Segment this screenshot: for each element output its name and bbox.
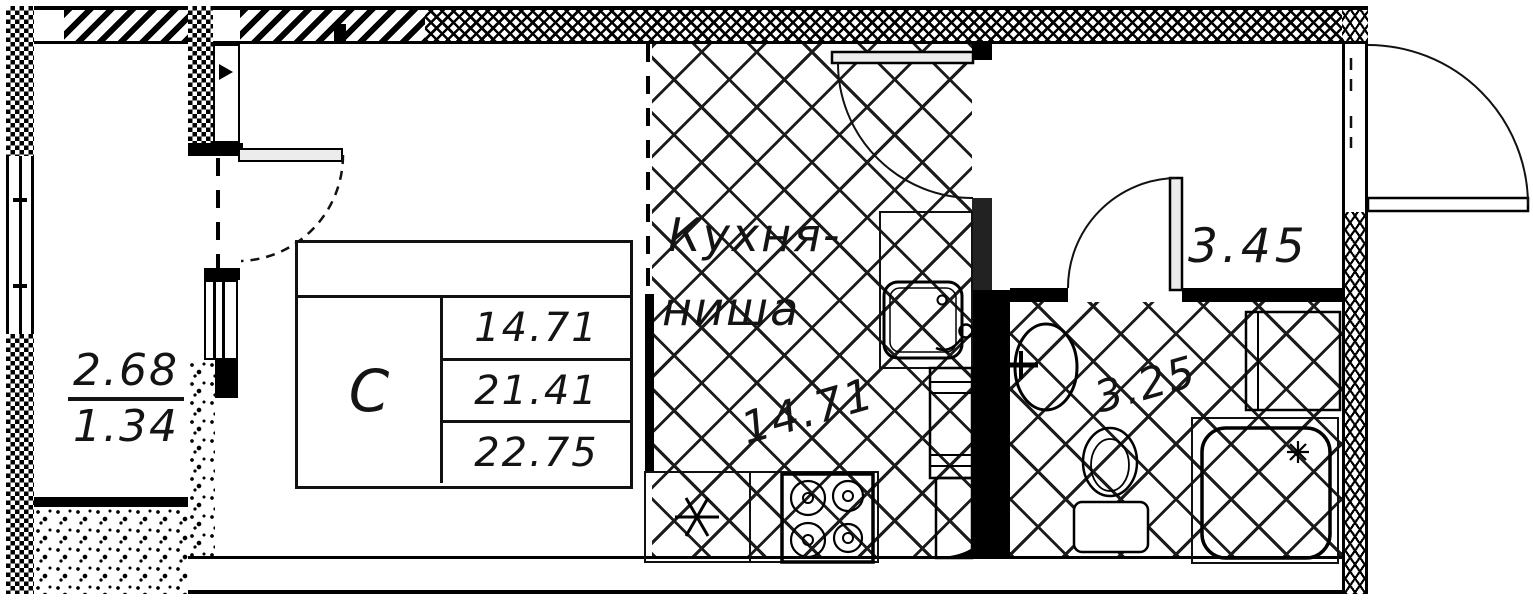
bathroom-door-swing-arc — [1068, 178, 1176, 288]
apartment-stamp: С 14.71 21.41 22.75 — [295, 240, 633, 489]
stamp-header-row — [298, 243, 630, 298]
partition-wall-block — [215, 360, 238, 398]
glazing-tick — [13, 284, 27, 288]
kitchen-label-line1: Кухня- — [668, 208, 841, 262]
balcony-glazing-bottom — [6, 334, 34, 594]
stamp-value-living-area: 14.71 — [443, 298, 630, 358]
balcony-door-threshold-dash — [216, 158, 220, 270]
balcony-window-frame-lower — [204, 280, 238, 360]
top-exterior-wall — [64, 6, 1368, 44]
kitchen-label-line2: ниша — [662, 282, 800, 336]
balcony-top-wall — [34, 6, 64, 44]
stamp-unit-type: С — [298, 298, 443, 483]
stamp-value-area: 21.41 — [443, 358, 630, 424]
glazing-center-line — [19, 156, 22, 334]
balcony-glazing-top — [6, 6, 34, 156]
kitchen-hall-wall — [972, 198, 992, 290]
right-exterior-wall — [1342, 212, 1368, 594]
entrance-door-leaf — [1368, 198, 1528, 211]
window-sill-cap — [204, 268, 240, 280]
top-wall-hatch-right — [425, 10, 1342, 41]
balcony-window-frame-upper — [213, 44, 240, 143]
balcony-area-label: 2.68 1.34 — [58, 348, 194, 450]
top-wall-hatch-mid — [240, 10, 425, 41]
bathroom-door-leaf — [1170, 178, 1182, 290]
floor-plan: С 14.71 21.41 22.75 2.68 1.34 Кухня- ниш… — [0, 0, 1533, 600]
window-pane-line — [222, 282, 225, 358]
bathroom-top-wall-left — [1010, 288, 1068, 302]
top-wall-hatch-left — [64, 10, 188, 41]
balcony-bottom-wall — [34, 497, 188, 507]
kitchen-niche-wall-strip — [645, 294, 654, 472]
kitchen-bathroom-wall — [972, 290, 1010, 556]
kitchen-niche-dashed-boundary — [646, 44, 650, 294]
bottom-exterior-wall — [188, 556, 1342, 594]
bathroom-floor — [1010, 302, 1342, 556]
entrance-door-swing-arc — [1368, 45, 1528, 205]
top-wall-corner — [1342, 10, 1368, 41]
door-jamb-cap — [188, 143, 243, 156]
stamp-value-total-area: 22.75 — [443, 423, 630, 483]
kitchen-hall-door-jamb — [972, 44, 992, 60]
balcony-area-top: 2.68 — [58, 348, 194, 394]
balcony-bottom-fill — [34, 507, 188, 594]
glazing-tick — [13, 198, 27, 202]
entrance-door-opening — [1342, 44, 1368, 212]
balcony-door-leaf — [238, 148, 343, 162]
balcony-area-bottom: 1.34 — [58, 404, 194, 450]
hallway-area-label: 3.45 — [1188, 219, 1309, 274]
bathroom-top-wall-right — [1182, 288, 1342, 302]
partition-wall-top — [188, 6, 213, 143]
balcony-glazing-window — [6, 156, 34, 334]
window-pane-line — [213, 282, 216, 358]
